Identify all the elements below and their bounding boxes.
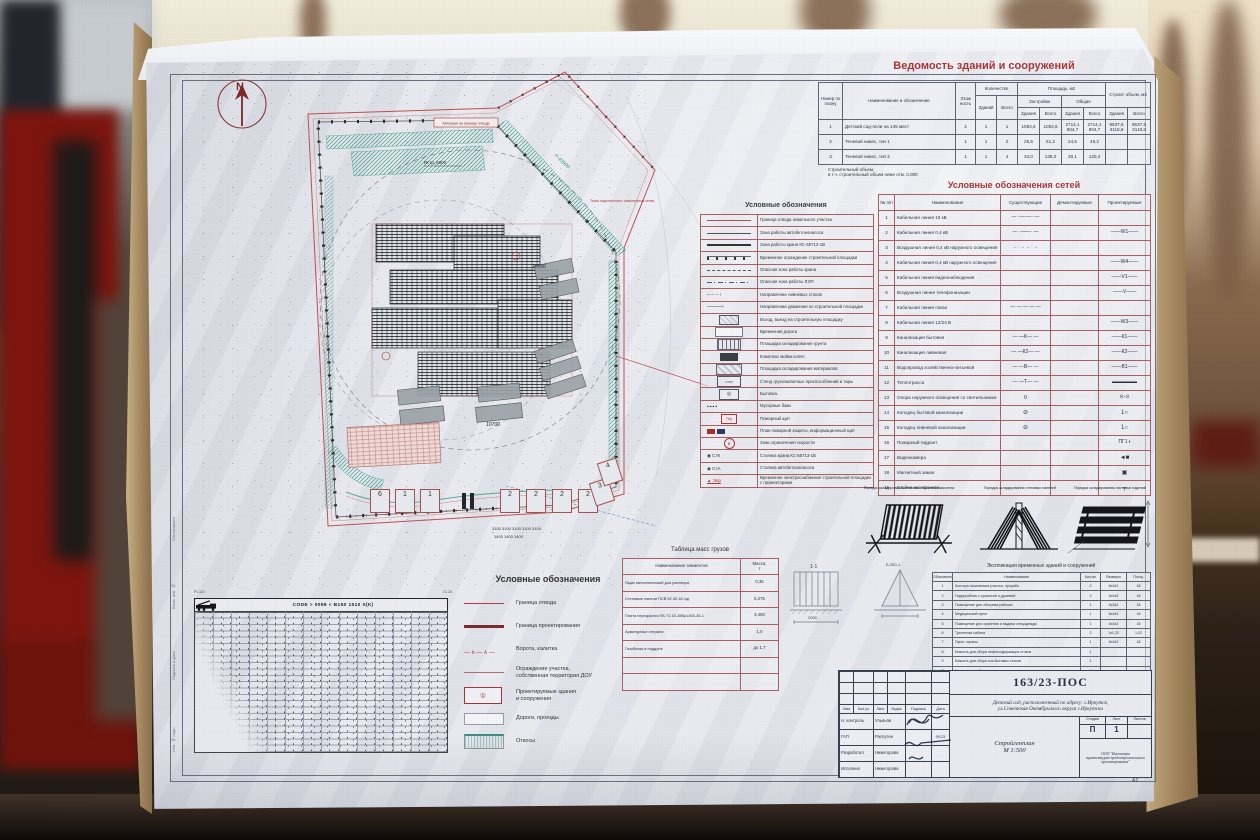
table-row: Арматурные стержни 1,0 [623, 624, 779, 641]
legend-symbol: ◉ СтА [701, 463, 758, 474]
table-row: 6 Туалетная кабина 2 1х1,22 1,22 [933, 628, 1151, 637]
site-plan-drawing: Автокран на границе отвода Точка подключ… [186, 56, 726, 596]
tree-branch [1208, 0, 1248, 300]
legend-label: План пожарной защиты, информационный щит [758, 429, 873, 434]
table-row: 1 Кабельная линия 10 кВ — ·—·—· — [879, 211, 1151, 226]
table-row: Ящик металлический для раствора 0,35 [623, 575, 779, 592]
legend-item: Зона работы автобетононасоса [701, 226, 873, 238]
legend-item: Площадка складирования грунта [701, 338, 873, 350]
column-header: Кол.уч [854, 705, 874, 714]
title-block: Изм Кол.уч Лист №док Подпись Дата Н. кон… [838, 670, 1152, 778]
column-header: Застройки [1018, 96, 1062, 108]
table-row: 7 Пункт охраны 1 6х3х3 18 [933, 638, 1151, 647]
stage-label: Стадия [1079, 717, 1105, 725]
legend-item: Опасная зона работы крана [701, 264, 873, 276]
column-header: Наименование [895, 195, 1001, 211]
svg-text:10700: 10700 [486, 422, 500, 428]
table-row: 3 Помещение для обогрева рабочих 1 6х3х3… [933, 600, 1151, 609]
column-header: Здания [1062, 108, 1084, 120]
legend-label: Опасная зона работы крана [758, 268, 873, 273]
column-header: Проектируемые [1099, 195, 1151, 211]
table-row: 12 Теплотрасса — —Т— — ▬▬▬▬▬ [879, 376, 1151, 391]
legend-symbol [701, 364, 758, 375]
column-header: Здания [1106, 108, 1128, 120]
column-header: Номер по плану [819, 83, 843, 120]
legend-symbol [464, 625, 510, 628]
svg-text:Rстр. 6000: Rстр. 6000 [424, 160, 447, 165]
legend-symbol: ▪▪▪▪ [701, 401, 758, 412]
legend-item: Площадка складирования материалов [701, 363, 873, 375]
legend-item: Опасная зона работы ЛЭП [701, 276, 873, 288]
crane-icon [195, 600, 219, 611]
legend-item: Ограждение участка, собственная территор… [464, 661, 614, 684]
cabin-box: 2 [552, 489, 572, 513]
table-row: 6 Воздушная линия телефонизации ——V—— [879, 286, 1151, 301]
table-row: 4 Медицинский пункт 1 6х3х3 18 [933, 610, 1151, 619]
sheet-label: Лист [1105, 717, 1127, 725]
networks-table-title: Условные обозначения сетей [878, 180, 1150, 190]
drawing-name: Стройгенплан М 1:500 [949, 717, 1079, 777]
column-header: Всего [1040, 108, 1062, 120]
table-row: 2 Кабельная линия 0,4 кВ — ·——· — ——W1—— [879, 226, 1151, 241]
svg-text:Б-250-1: Б-250-1 [886, 562, 901, 567]
legend-label: Ограждение участка, собственная территор… [510, 666, 592, 679]
legend-item: Направление движения по строительной пло… [701, 301, 873, 313]
legend-item: Въезд, выезд на строительную площадку [701, 313, 873, 325]
legend-label: Проектируемые здания и сооружения [510, 689, 576, 702]
svg-text:2000: 2000 [808, 615, 818, 620]
column-header: Наименование элементов [623, 559, 741, 575]
table-row: 5 Кабельная линия видеонаблюдения ——V1—— [879, 271, 1151, 286]
legend-label: Бытовка [758, 392, 873, 397]
stage-value: П [1079, 725, 1105, 739]
legend-item: Ворота, калитка [464, 638, 614, 661]
sheets-label: Листов [1127, 717, 1151, 725]
legend-symbol [701, 252, 758, 263]
cabin-box: 2 [500, 489, 520, 513]
table-row: 5 Помещение для хранения и выдачи спецод… [933, 619, 1151, 628]
legend-label: Ворота, калитка [510, 646, 557, 652]
legend-item: ▪▪▪▪ Мусорные баки [701, 400, 873, 412]
legend-label: Опасная зона работы ЛЭП [758, 280, 873, 285]
legend-symbol [464, 672, 510, 673]
sheet-value: 1 [1105, 725, 1127, 739]
legend-item: Откосы [464, 730, 614, 753]
cabin-box: 2 [526, 489, 546, 513]
legend-label: Пожарный щит [758, 417, 873, 422]
legend-label: Мусорные баки [758, 404, 873, 409]
legend-label: Направление ливневых стоков [758, 293, 873, 298]
legend-symbol [701, 289, 758, 300]
boundaries-legend: Граница отвода Граница проектирования Во… [464, 592, 614, 753]
legend-symbol [701, 215, 758, 226]
legend-label: Площадка складирования грунта [758, 342, 873, 347]
table-row: 8 Емкость для сбора нефтесодержащих сток… [933, 647, 1151, 656]
svg-text:Точка подключения к инженерным: Точка подключения к инженерным сетям [590, 199, 655, 203]
buildings-table-note: Строительный объем, в т.ч. строительный … [828, 167, 1048, 177]
margin-label: Подпись и дата [171, 632, 182, 700]
legend-symbol [701, 351, 758, 362]
stacking-caption: Порядок складирования стеновых панелей [972, 486, 1068, 490]
column-header: Демонтируемые [1051, 195, 1099, 211]
table-row: 1 Детский сад-ясли на 145 мест 2 1 1 105… [819, 120, 1151, 135]
sheets-value [1127, 725, 1151, 739]
column-header: Количество [976, 83, 1018, 96]
buildings-table: Номер по плану Наименование и обозначени… [818, 82, 1151, 165]
column-header: Здания [1018, 108, 1040, 120]
legend-symbol: ① [464, 687, 510, 704]
column-header: Существующие [1001, 195, 1051, 211]
column-header: Всего [1084, 108, 1106, 120]
legend-symbol [701, 327, 758, 338]
legend-label: Временное ограждение строительной площад… [758, 256, 873, 261]
legend-item: ◉ СтА Стоянка автобетононасоса [701, 462, 873, 474]
table-row: 18 Магнитный замок ▣ [879, 466, 1151, 481]
legend-label: Направление движения по строительной пло… [758, 305, 873, 310]
svg-text:3100 3100 3100 3100 3100: 3100 3100 3100 3100 3100 [492, 526, 542, 531]
table-row: 10 Канализация ливневая — —К2— — ——К2—— [879, 346, 1151, 361]
table-row [623, 657, 779, 674]
legend-symbol [701, 227, 758, 238]
column-header: Площадь, м2 [1018, 83, 1106, 96]
project-name: Детский сад, расположенный по адресу: г.… [949, 695, 1151, 717]
organization-name: ООО "Институт архитектурно-градостроител… [1079, 739, 1151, 777]
table-row: 4 Кабельная линия 0,4 кВ наружного освещ… [879, 256, 1151, 271]
legend-label: Знак ограничения скорости [758, 441, 873, 446]
legend-item: План пожарной защиты, информационный щит [701, 425, 873, 437]
legend-item: ▲ Эпр Временное электроснабжение строите… [701, 474, 873, 486]
column-header: Строит. объем, м3 [1106, 83, 1151, 108]
legend-title: Условные обозначения [462, 574, 634, 584]
explication-title: Экспликация временных зданий и сооружени… [932, 563, 1150, 569]
legend-label: Площадка складирования материалов [758, 367, 873, 372]
rigging-sketch: 1-1 2000 Б-250-1 [786, 556, 928, 688]
column-header: Всего [1128, 108, 1151, 120]
svg-text:10700: 10700 [532, 264, 546, 270]
stacking-caption: Порядок складирования стеновых панелей в… [850, 486, 968, 490]
legend-item: Зона работы крана КС-55713-1В [701, 239, 873, 251]
legend-item: ◉ СтК Стоянка крана КС-55713-1В [701, 449, 873, 461]
legend-item: СТЗП Стенд грузозахватных приспособлений… [701, 375, 873, 387]
table-row [623, 674, 779, 691]
legend-label: Комплекс мойки колёс [758, 355, 873, 360]
table-row: Газоблоки в поддоне до 1,7 [623, 641, 779, 658]
column-header: Наименование [953, 573, 1081, 582]
table-row: 3 Воздушная линия 0,4 кВ наружного освещ… [879, 241, 1151, 256]
column-header: Зданий [976, 96, 997, 120]
legend-label: Зона работы автобетононасоса [758, 231, 873, 236]
cabin-box: 6 [370, 489, 390, 513]
table-row: 9 Емкость для сбора хоз-бытовых стоков 1 [933, 657, 1151, 666]
legend-item: Комплекс мойки колёс [701, 350, 873, 362]
svg-text:1-1: 1-1 [810, 564, 817, 570]
signature-scribbles [901, 707, 957, 773]
legend-label: Зона работы крана КС-55713-1В [758, 243, 873, 248]
legend-symbol [701, 240, 758, 251]
table-row: 1 Контора начальника участка, прораба 2 … [933, 582, 1151, 591]
chart-code-label: CODE > 0098 < В150 1510 Х(К) [219, 603, 447, 608]
legend-label: Стенд грузозахватных приспособлений и та… [758, 380, 873, 385]
legend-item: Граница отвода земельного участка [701, 215, 873, 226]
table-row: 14 Колодец бытовой канализации ⊘ 1○ [879, 406, 1151, 421]
document-code: 163/23-ПОС [949, 671, 1151, 695]
table-row: 3 Теневой навес, тип 2 1 1 4 34,0 136,0 … [819, 150, 1151, 165]
legend-label: Откосы [510, 738, 535, 744]
table-row: Плита перекрытия ПБ 72.15-15Вр1400-35-1 … [623, 608, 779, 625]
stacking-diagram-slabs [1064, 497, 1156, 557]
legend-symbol [701, 277, 758, 288]
legend-symbol [701, 426, 758, 437]
legend-label: Граница отвода [510, 600, 556, 606]
legend-item: ① Проектируемые здания и сооружения [464, 684, 614, 707]
legend-label: Стоянка автобетононасоса [758, 466, 873, 471]
legend-symbol [701, 339, 758, 350]
cabin-box: 1 [395, 489, 415, 513]
legend-symbol [701, 302, 758, 313]
site-plan: Автокран на границе отвода Точка подключ… [186, 56, 726, 596]
legend-symbol [464, 641, 510, 659]
margin-label: Согласовано [171, 498, 182, 560]
column-header: Кол-во [1081, 573, 1101, 582]
column-header: Общая [1062, 96, 1106, 108]
legend-label: Въезд, выезд на строительную площадку [758, 318, 873, 323]
sheet-format: А2 [1132, 778, 1138, 784]
stacking-diagram-pyramid [976, 497, 1062, 557]
legend-symbol [464, 713, 510, 725]
machine-shadow [54, 140, 96, 560]
red-smudge [1192, 420, 1260, 468]
crane-load-chart: РС110 21.28 CODE > 0098 < В150 1510 Х(К) [184, 586, 460, 764]
svg-text:1400 1400 1400: 1400 1400 1400 [494, 534, 524, 539]
legend-label: Временное электроснабжение строительной … [758, 476, 873, 485]
svg-text:Р-43900: Р-43900 [553, 153, 571, 170]
table-row: 9 Канализация бытовая — —К— — ——К1—— [879, 331, 1151, 346]
legend-label: Стоянка крана КС-55713-1В [758, 454, 873, 459]
legend-symbol [464, 603, 510, 604]
column-header: Размеры [1101, 573, 1127, 582]
column-header: Лист [874, 705, 888, 714]
legend-item: Временная дорога [701, 326, 873, 338]
svg-text:Автокран на границе отвода: Автокран на границе отвода [442, 121, 489, 125]
table-row: 11 Водопровод хозяйственно-питьевой — —В… [879, 361, 1151, 376]
legend-label: Дороги, проезды [510, 715, 559, 721]
mass-table: Наименование элементов Масса, т Ящик мет… [622, 558, 779, 691]
cabin-box: 1 [420, 489, 440, 513]
chart-corner-label: РС110 [194, 590, 205, 594]
legend-item: Направление ливневых стоков [701, 288, 873, 300]
table-row: 16 Пожарный гидрант ПГ1◑ [879, 436, 1151, 451]
table-row: Стеновые панели ПСВ 52.30.16-1дг 6,275 [623, 591, 779, 608]
legend-symbol: ПЩ [701, 413, 758, 424]
legend-symbol: СТЗП [701, 376, 758, 387]
legend-item: Граница отвода [464, 592, 614, 615]
stacking-diagram-cassette [854, 497, 964, 557]
column-header: Площ. [1127, 573, 1151, 582]
table-row: 15 Колодец ливневой канализации ⊖ 1○ [879, 421, 1151, 436]
explication-table: Обозначение Наименование Кол-во Размеры … [932, 572, 1151, 676]
legend-item: 5 Знак ограничения скорости [701, 437, 873, 449]
networks-table: № п/п Наименование Существующие Демонтир… [878, 194, 1151, 496]
table-row: 7 Кабельная линия связи — — — — — [879, 301, 1151, 316]
legend-symbol: ◎ [701, 388, 758, 399]
legend-label: Временная дорога [758, 330, 873, 335]
table-row: 17 Видеокамера ◄■ [879, 451, 1151, 466]
table-row: 13 Опора наружного освещения со светильн… [879, 391, 1151, 406]
column-header: Наименование и обозначение [843, 83, 956, 120]
stacking-caption: Порядок складирования листовых изделий [1062, 486, 1158, 490]
legend-symbol: ▲ Эпр [701, 475, 758, 486]
mass-table-title: Таблица масс грузов [622, 547, 778, 553]
column-header: № п/п [879, 195, 895, 211]
legend-label: Граница проектирования [510, 623, 580, 629]
column-header: Всего [997, 96, 1018, 120]
column-header: Обозначение [933, 573, 953, 582]
legend-item: Дороги, проезды [464, 707, 614, 730]
column-header: Этаж ность [956, 83, 976, 120]
legend-item: Временное ограждение строительной площад… [701, 251, 873, 263]
buildings-table-title: Ведомость зданий и сооружений [818, 60, 1150, 72]
legend-label: Граница отвода земельного участка [758, 218, 873, 223]
legend-item: ПЩ Пожарный щит [701, 412, 873, 424]
legend-symbol: 5 [701, 438, 758, 449]
table-row: 8 Кабельная линия 12/24 В ——W3—— [879, 316, 1151, 331]
margin-label: Инв. № подл. [171, 705, 182, 773]
photo-of-construction-plan-board: Согласовано Взам. инв. № Подпись и дата … [0, 0, 1260, 840]
column-header: Масса, т [741, 559, 779, 575]
margin-label: Взам. инв. № [171, 565, 182, 627]
table-row: 2 Теневой навес, тип 1 1 1 2 25,6 51,2 2… [819, 135, 1151, 150]
site-legend: Граница отвода земельного участка Зона р… [700, 214, 874, 488]
chart-corner-label: 21.28 [443, 590, 452, 594]
legend-item: Граница проектирования [464, 615, 614, 638]
column-header: Изм [840, 705, 854, 714]
legend-symbol: ◉ СтК [701, 450, 758, 461]
legend-symbol [701, 314, 758, 325]
table-row: 2 Гардеробная с сушилкой и душевой 3 6х3… [933, 591, 1151, 600]
legend-item: ◎ Бытовка [701, 387, 873, 399]
load-chart-grid [194, 611, 448, 753]
legend-title: Условные обозначения [700, 202, 872, 209]
legend-symbol [701, 265, 758, 276]
legend-symbol [464, 734, 510, 749]
